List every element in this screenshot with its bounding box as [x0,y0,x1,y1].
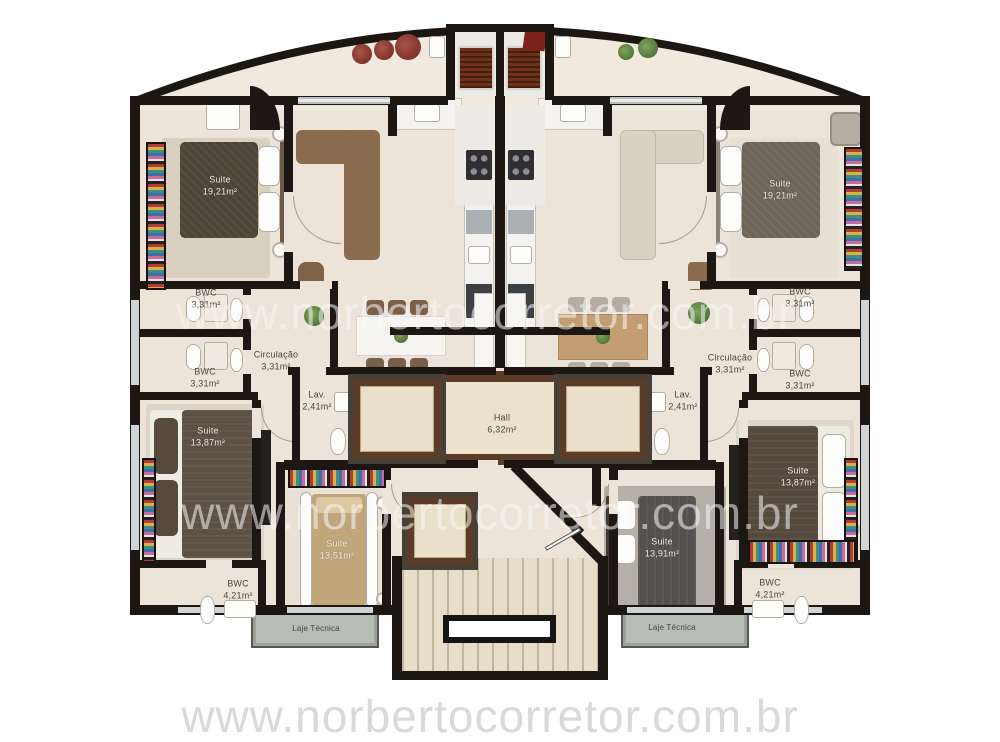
armchair-suite-tr [830,112,862,146]
window-left-lower [131,425,139,550]
sofa-left-body [344,130,380,260]
bbq-side-cabinet-right [555,36,571,58]
window-left-upper [131,300,139,385]
kitchen-sink-right [510,246,532,264]
wardrobe-suite-tl [146,142,166,290]
bed-suite-mr-pillow-b [822,492,846,546]
sliding-door-terrace-left [298,97,390,104]
bwc-bl-toilet [200,596,215,624]
room-label-laje-right: Laje Técnica [648,623,696,633]
door-gap-suite-tr [707,192,716,252]
door-gap-bwc-bl [206,560,232,568]
wardrobe-suite-ml [142,458,156,563]
suite-tl-right-wall-a [284,96,293,192]
door-gap-suite-ml [252,408,261,438]
window-bottom-right-b [627,607,713,613]
bbq-side-cabinet-left [429,36,445,58]
room-label-lav-right: Lav.2,41m² [668,389,697,412]
bwc-l2-toilet [230,348,243,372]
door-gap-lav-right [674,367,700,375]
floor-plan-canvas: Suite19,21m² Suite19,21m² BWC3,31m² BWC3… [0,0,1000,742]
room-label-circulacao-right: Circulação3,31m² [708,352,753,375]
kitchen-sink-left [468,246,490,264]
room-label-bwc-left-lower: BWC3,31m² [190,366,219,389]
sliding-door-terrace-right [610,97,702,104]
lav-right-wall [700,367,708,468]
bed-suite-mr-pillow-a [822,434,846,488]
lav-left-toilet [330,428,346,455]
window-right-upper [861,300,869,385]
bed-suite-tr-pillow-b [720,192,742,232]
appliance-right-a [508,210,534,234]
bwc-br-vanity [752,600,784,618]
watermark-middle-upper: www.norbertocorretor.com.br [176,286,794,340]
stove-right [508,150,534,180]
terrace-planter-2 [374,40,394,60]
door-gap-hall [478,460,498,468]
window-right-lower [861,425,869,550]
bwc-br-left-wall [734,560,742,607]
appliance-left-a [466,210,492,234]
wardrobe-suite-br [748,540,856,564]
suite-tr-left-wall-a [707,96,716,192]
room-label-suite-top-right: Suite19,21m² [763,178,797,201]
bwc-r2-sink [799,344,814,370]
room-label-suite-top-left: Suite19,21m² [203,174,237,197]
bed-suite-ml-pillow-b [154,480,178,536]
door-gap-lav-left [300,367,326,375]
terrace-plant-1 [618,44,634,60]
room-label-suite-bottom-left: Suite13,51m² [320,538,354,561]
room-label-suite-mid-left: Suite13,87m² [191,425,225,448]
door-gap-suite-tl [284,192,293,252]
room-label-circulacao-left: Circulação3,31m² [254,349,299,372]
suite-ml-bottom-wall [138,560,265,568]
window-bottom-left-b [287,607,373,613]
suite-ml-top-wall [138,392,258,400]
wardrobe-suite-bl [288,468,386,488]
lav-right-toilet [654,428,670,455]
bed-suite-tl-pillow-b [258,192,280,232]
watermark-middle-lower: www.norbertocorretor.com.br [181,486,799,540]
stair-rail [443,615,556,643]
bwc-r2-shower [772,342,796,370]
room-label-bwc-bottom-left: BWC4,21m² [223,578,252,601]
kitchen-sink-top-right [560,104,586,122]
sofa-right-body [620,130,656,260]
elevator-right [554,374,652,464]
suite-mr-top-wall [742,392,862,400]
bwc-bl-right-wall [258,560,266,607]
room-label-laje-left: Laje Técnica [292,624,340,634]
stair-wall-right [598,556,608,680]
bed-suite-tl-pillow-a [258,146,280,186]
kitchen-sink-top-left [414,104,440,122]
bbq-wall-middle [496,24,504,100]
stove-left [466,150,492,180]
terrace-planter-3 [395,34,421,60]
bwc-br-toilet [794,596,809,624]
bbq-wall-right [545,24,554,100]
elevator-left [348,374,446,464]
bwc-bl-vanity [224,600,256,618]
door-gap-bwc-l2 [243,350,251,374]
bwc-r2-toilet [757,348,770,372]
bed-suite-ml-pillow-a [154,418,178,474]
barbecue-grill-right [506,46,542,90]
room-label-bwc-right-lower: BWC3,31m² [785,368,814,391]
room-label-lav-left: Lav.2,41m² [302,389,331,412]
lav-left-wall [292,367,300,468]
bbq-wall-left [446,24,455,100]
bed-suite-tr-pillow-a [720,146,742,186]
barbecue-grill-left [458,46,494,90]
terrace-planter-1 [352,44,372,64]
room-label-bwc-bottom-right: BWC4,21m² [755,577,784,600]
terrace-plant-2 [638,38,658,58]
stair-wall-bottom [392,671,608,680]
bench-suite-tl [206,102,240,130]
door-gap-suite-mr [739,408,748,438]
stair-wall-left [392,556,402,680]
room-label-hall: Hall6,32m² [487,412,516,435]
wardrobe-suite-tr [844,147,864,271]
watermark-bottom: www.norbertocorretor.com.br [181,689,799,742]
